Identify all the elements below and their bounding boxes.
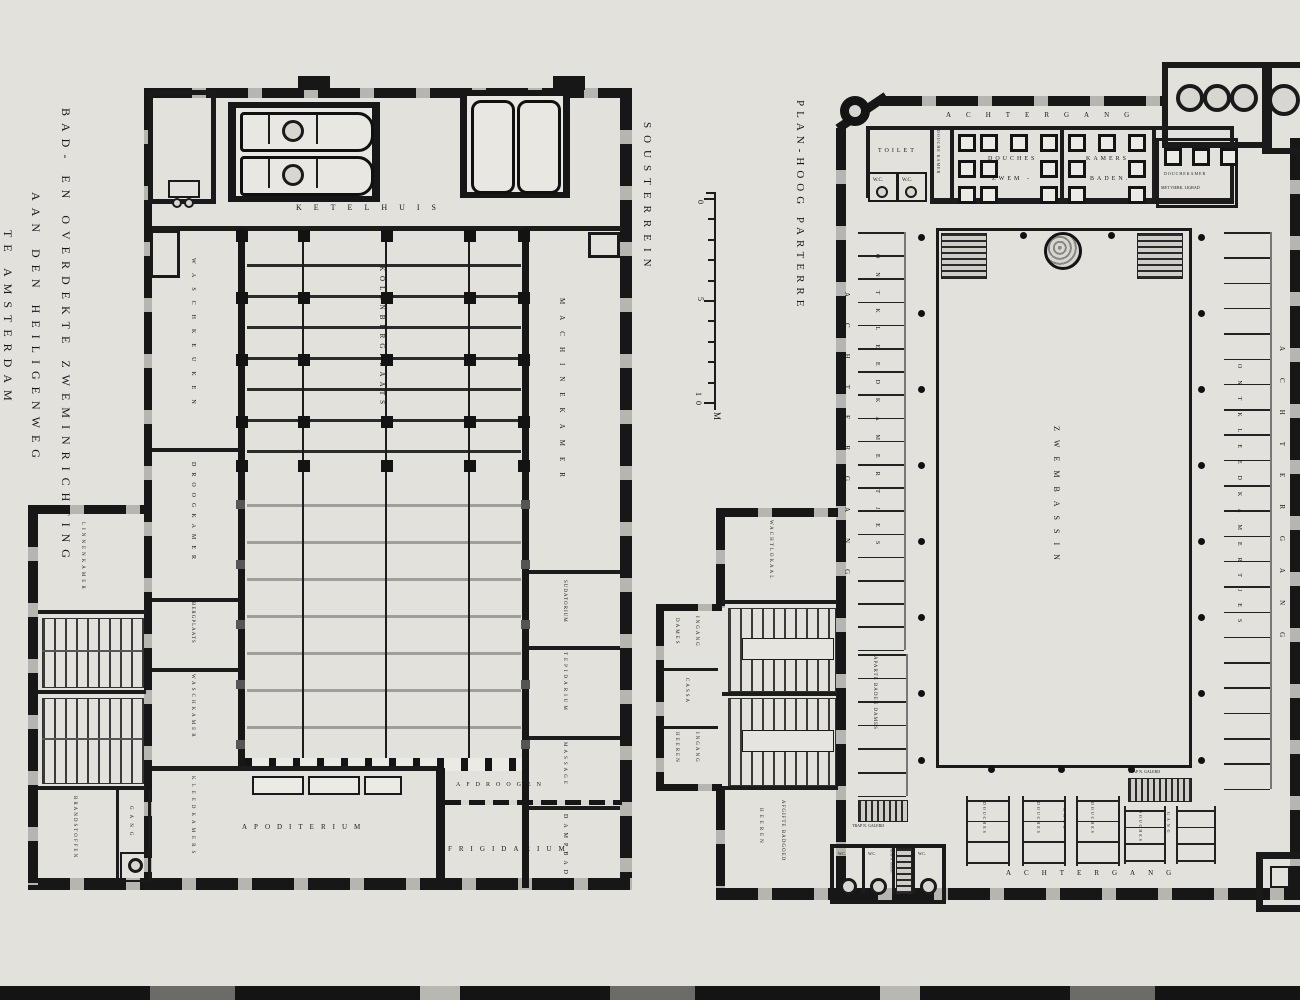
scale-bar-ticks-el: [708, 280, 714, 282]
lp-label-apoditerium: APODITERIUM: [242, 824, 367, 831]
lp-boiler-1-line2: [316, 114, 318, 144]
lp-hall-columns-el: [521, 620, 530, 629]
rp-label-wc-top-2: W.C.: [902, 178, 912, 183]
rp-ent-small-div-2: [662, 726, 718, 729]
lp-hall-columns-el: [298, 460, 310, 472]
rp-douche-groups-el: [966, 862, 1008, 864]
rp-ent-div-y788: [722, 786, 838, 790]
rp-ent-prot-left: [656, 604, 664, 790]
rp-pool-columns-el: [1198, 538, 1205, 545]
rp-shower-squares-el: [1010, 134, 1028, 152]
sheet-title-line1: BAD- EN OVERDEKTE ZWEMINRICHTING: [60, 108, 72, 488]
lp-hall-columns-el: [236, 292, 248, 304]
lp-hall-columns-el: [521, 740, 530, 749]
rp-douche-groups-el: [1022, 841, 1064, 843]
rp-shower-squares-el: [958, 186, 976, 204]
rp-zwem-wall-right: [1060, 126, 1064, 204]
lp-stair-1: [42, 618, 144, 688]
rp-shower-squares-el: [1164, 148, 1182, 166]
rp-stalls-right-el: [1224, 561, 1270, 563]
lp-div-y668: [152, 668, 240, 672]
rp-pool-columns-el: [918, 310, 925, 317]
rp-narrow-wall-2: [950, 126, 954, 204]
lp-hall-columns-el: [236, 500, 245, 509]
rp-stalls-left-el: [858, 654, 906, 656]
lp-stair-2: [42, 698, 144, 784]
rp-label-gang-2: GANG: [1166, 812, 1170, 856]
rp-shower-squares-el: [1040, 186, 1058, 204]
rp-stair-bottom-hatch: [1128, 778, 1192, 802]
rp-label-afgifte: AFGIFTE BADGOED: [780, 800, 785, 886]
rp-pool-steps-tr: [1137, 233, 1183, 279]
rp-shower-squares-el: [958, 134, 976, 152]
lp-hall-columns-el: [236, 680, 245, 689]
lp-label-droogkamer: DROOGKAMER: [190, 462, 196, 594]
rp-stalls-left-el: [858, 772, 906, 774]
rp-shower-squares-el: [1068, 186, 1086, 204]
lp-hall-columns-el: [236, 416, 248, 428]
rp-stalls-left-el: [858, 748, 906, 750]
rp-ent-wall-bottom: [716, 888, 840, 900]
rp-douche-groups-el: [1022, 821, 1064, 823]
lp-label-waschkamer: WASCHKAMER: [190, 674, 195, 764]
rp-stalls-left-el: [858, 418, 904, 420]
rp-ent-stair-2-landing: [742, 730, 834, 752]
lp-hall-beams-lower: [247, 470, 521, 758]
rp-stalls-left-el: [858, 678, 906, 680]
rp-stalls-right-el: [1224, 359, 1270, 361]
lp-label-kleedkamers: KLEEDKAMERS: [190, 776, 195, 876]
rp-stalls-right-el: [1224, 460, 1270, 462]
rp-stalls-right-el: [1224, 637, 1270, 639]
rp-stalls-left-el: [858, 441, 904, 443]
rp-label-douches-4: DOUCHES: [1138, 810, 1142, 864]
rp-stalls-right-el: [1224, 257, 1270, 259]
lp-out-div-y610: [38, 610, 146, 614]
rp-label-heeren-bottom: HEEREN: [758, 808, 763, 868]
rp-pool-columns-el: [1020, 232, 1027, 239]
rp-ent-wall-left-upper: [716, 508, 725, 608]
rp-douche-groups-el: [1076, 821, 1118, 823]
rp-corner-column: [840, 96, 870, 126]
rp-label-achtergang-bottom: ACHTERGANG: [1006, 870, 1184, 877]
lp-hall-columns-el: [464, 416, 476, 428]
lp-reservoir-2: [517, 100, 561, 194]
rp-label-douches-3: DOUCHES: [1090, 802, 1094, 862]
rp-stalls-right-el: [1224, 789, 1270, 791]
rp-stalls-left-el: [858, 557, 904, 559]
rp-stalls-right-el: [1224, 409, 1270, 411]
lp-hall-columns-el: [518, 354, 530, 366]
rp-label-dames: DAMES: [674, 618, 679, 662]
rp-douche-groups-el: [966, 800, 1008, 802]
lp-hall-columns-el: [236, 740, 245, 749]
rp-douche-groups-el: [1176, 806, 1178, 864]
lp-tub-3: [364, 776, 402, 795]
scale-label-unit: M: [712, 412, 721, 426]
rp-wc-div-1: [862, 846, 865, 894]
lp-div-y766: [152, 766, 438, 771]
rp-label-aparte-baden: APARTE BADEN DAMES: [872, 656, 877, 798]
rp-ent-wall-left-lower: [716, 788, 725, 892]
rp-stalls-right-el: [1224, 485, 1270, 487]
rp-douche-groups-el: [1022, 800, 1064, 802]
rp-pool-columns-el: [918, 234, 925, 241]
lp-hall-columns-el: [464, 354, 476, 366]
lp-hall-columns-el: [236, 230, 248, 242]
lp-label-ketelhuis: KETELHUIS: [296, 204, 448, 212]
rp-stalls-right-el: [1224, 434, 1270, 436]
rp-shower-squares-el: [958, 160, 976, 178]
rp-label-achtergang-top: ACHTERGANG: [946, 112, 1144, 119]
lp-hall-columns-el: [518, 230, 530, 242]
rp-stalls-left-el: [858, 701, 906, 703]
rp-label-heeren-ing: HEEREN: [674, 732, 679, 780]
rp-douche-groups-el: [1008, 796, 1010, 866]
rp-label-trap-galerij-bottom: TRAP N. GALERIJ: [1128, 770, 1160, 774]
rp-stalls-left-el: [906, 654, 908, 796]
scale-bar-ticks-el: [708, 218, 714, 220]
rp-label-douches-2: DOUCHES: [1036, 802, 1040, 862]
rp-pool-columns-el: [918, 690, 925, 697]
rp-ent-wall-top: [716, 508, 838, 517]
rp-ent-div-y600: [722, 600, 838, 604]
rp-stalls-left-el: [858, 603, 904, 605]
rp-label-wachtlokaal: WACHTLOKAAL: [768, 520, 773, 598]
lp-out-div-y786: [38, 786, 146, 790]
rp-shower-squares-el: [1098, 134, 1116, 152]
lp-tub-2: [308, 776, 360, 795]
lp-div-right-y570: [529, 570, 620, 574]
lp-out-wall-top: [28, 505, 150, 514]
rp-pool-steps-tl: [941, 233, 987, 279]
rp-narrow-wall-1: [930, 126, 934, 204]
rp-stalls-right-el: [1224, 333, 1270, 335]
lp-hall-columns-el: [521, 680, 530, 689]
rp-label-ontkleed-left: ONTKLEEDKAMERTJES: [874, 254, 880, 626]
lp-boiler-2-line2: [316, 158, 318, 188]
scale-bar-ticks-el: [708, 361, 714, 363]
lp-hall-columns-el: [518, 460, 530, 472]
lp-div-y448: [152, 448, 240, 452]
rp-label-ligbad-1: DOUCHEKAMER: [1164, 172, 1206, 176]
lp-hall-columns-el: [298, 354, 310, 366]
rp-stalls-left-el: [858, 325, 904, 327]
rp-douche-groups-el: [1124, 810, 1164, 812]
lp-stair-2-rail: [42, 738, 142, 740]
left-plan-caption: SOUSTERREIN: [641, 122, 652, 282]
rp-label-toilet: TOILET: [878, 148, 917, 154]
rp-ent-prot-top: [656, 604, 722, 611]
rp-lightwell-4: [1268, 84, 1300, 116]
rp-stalls-right-el: [1224, 713, 1270, 715]
rp-pool-columns-el: [1198, 310, 1205, 317]
rp-wc-fixture-2: [870, 878, 887, 895]
lp-hall-columns-el: [236, 560, 245, 569]
rp-stalls-right-el: [1224, 738, 1270, 740]
rp-pool-columns-el: [918, 538, 925, 545]
lp-wc-cell: [150, 230, 180, 278]
rp-label-kamers-2: BADEN.: [1090, 176, 1130, 182]
scale-bar-ticks-el: [708, 320, 714, 322]
rp-shower-squares-el: [1220, 148, 1238, 166]
lp-small-cell-fixture: [128, 858, 143, 873]
rp-wc-fixture-1: [840, 878, 857, 895]
lp-hall-columns-el: [236, 354, 248, 366]
rp-label-cassa: CASSA: [684, 678, 689, 720]
rp-label-wc-top-1: W.C.: [873, 178, 883, 183]
lp-wall-x436: [436, 768, 445, 880]
lp-reservoir-1: [471, 100, 515, 194]
rp-ent-small-div-1: [662, 668, 718, 671]
rp-label-gang-1: GANG: [1062, 808, 1066, 854]
rp-pool-columns-el: [918, 757, 925, 764]
rp-stalls-left-el: [858, 278, 904, 280]
rp-wc-fixture-3: [920, 878, 937, 895]
lp-boiler-2: [240, 156, 374, 196]
scan-edge-strip: [0, 986, 1300, 1000]
lp-out-div-y690: [38, 690, 146, 694]
rp-label-trap-soust: TRAP N. SOUST.: [889, 848, 893, 892]
lp-hall-columns-el: [298, 292, 310, 304]
lp-label-frigidarium: FRIGIDARIUM: [448, 846, 572, 853]
lp-hall-columns-el: [236, 460, 248, 472]
lp-hall-columns-el: [464, 460, 476, 472]
rp-stair-soust-hatch: [896, 848, 912, 894]
rp-douche-groups-el: [1124, 806, 1126, 864]
rp-stair-left-hatch: [858, 800, 908, 822]
rp-stalls-left-el: [858, 394, 904, 396]
lp-label-bergplaats: BERGPLAATS: [190, 602, 195, 666]
rp-douche-groups-el: [966, 821, 1008, 823]
rp-label-wc-3: W.C.: [918, 852, 926, 856]
rp-stalls-left-el: [858, 580, 904, 582]
rp-pool-columns-el: [1198, 757, 1205, 764]
rp-stalls-right-el: [1224, 687, 1270, 689]
scale-bar-ticks-el: [708, 239, 714, 241]
lp-gang-wall-1: [116, 790, 119, 880]
lp-wall-left-main: [144, 88, 152, 888]
sheet-title-line3: TE AMSTERDAM: [2, 230, 14, 390]
rp-stalls-left-el: [858, 464, 904, 466]
sheet-title-line2: AAN DEN HEILIGENWEG: [30, 192, 42, 422]
lp-boiler-1: [240, 112, 374, 152]
lp-chimney-stub-2: [553, 76, 585, 90]
lp-hall-columns-el: [521, 500, 530, 509]
rp-stalls-left-el: [858, 626, 904, 628]
rp-lightwell-1: [1176, 84, 1204, 112]
rp-pool-columns-el: [1108, 232, 1115, 239]
rp-stalls-right-el: [1224, 612, 1270, 614]
rp-stalls-right-el: [1224, 232, 1270, 234]
rp-douche-groups-el: [1022, 796, 1024, 866]
rp-douche-groups-el: [1076, 862, 1118, 864]
rp-pool-columns-el: [918, 386, 925, 393]
lp-label-linnenkamer: LINNENKAMER: [80, 522, 85, 608]
rp-label-ontkleed-right: ONTKLEEDKAMERTJES: [1236, 364, 1242, 694]
rp-wall-right: [1290, 138, 1300, 898]
rp-pool-columns-el: [1198, 614, 1205, 621]
lp-chimney-stub-1: [298, 76, 330, 90]
rp-label-achtergang-left: ACHTERGANG: [843, 292, 850, 642]
rp-pool-columns-el: [918, 462, 925, 469]
rp-stalls-right-el: [1224, 308, 1270, 310]
lp-hall-post-line-3: [468, 232, 470, 760]
rp-shower-squares-el: [1040, 134, 1058, 152]
rp-shower-squares-el: [1040, 160, 1058, 178]
lp-boiler-2-line: [268, 158, 270, 188]
lp-boiler-2-manhole: [282, 164, 304, 186]
rp-pool-columns-el: [1058, 766, 1065, 773]
lp-hall-columns-el: [236, 620, 245, 629]
lp-annex-fixture: [168, 180, 200, 198]
lp-hall-columns-el: [298, 230, 310, 242]
lp-div-right-y736: [529, 736, 620, 740]
rp-shower-squares-el: [980, 186, 998, 204]
rp-shower-squares-el: [1068, 134, 1086, 152]
lp-label-machinekamer: MACHINEKAMER: [558, 298, 565, 526]
scale-bar-ticks-el: [708, 259, 714, 261]
rp-stalls-left-el: [858, 796, 906, 798]
rp-label-achtergang-right: ACHTERGANG: [1278, 346, 1285, 702]
rp-douche-groups-el: [1124, 827, 1164, 829]
scale-bar-ticks-el: [708, 341, 714, 343]
rp-shower-squares-el: [1192, 148, 1210, 166]
rp-douche-groups-el: [1022, 862, 1064, 864]
lp-out-wall-left: [28, 505, 38, 885]
scale-label-0: 0: [696, 200, 704, 214]
rp-douche-groups-el: [1124, 843, 1164, 845]
rp-label-ingang-dames: INGANG: [694, 616, 699, 664]
lp-label-kolenbergplaats: KOLENBERGPLAATS: [378, 266, 385, 438]
rp-pool-columns-el: [1198, 386, 1205, 393]
rp-wc-block: [830, 844, 946, 904]
rp-stalls-right-el: [1270, 232, 1272, 789]
rp-pool-columns-el: [1198, 234, 1205, 241]
lp-boiler-1-manhole: [282, 120, 304, 142]
rp-stalls-right-el: [1224, 536, 1270, 538]
scale-bar-bracket: [706, 192, 716, 194]
rp-lightwell-2: [1203, 84, 1231, 112]
lp-annex-fixture-dot-1: [172, 198, 182, 208]
rp-stalls-left-el: [858, 302, 904, 304]
rp-shower-squares-el: [1068, 160, 1086, 178]
rp-douche-groups-el: [1176, 860, 1214, 862]
lp-div-right-y806: [529, 806, 620, 810]
rp-label-ligbad-2: MET VIERK. LIGBAD: [1161, 186, 1200, 190]
rp-shower-squares-el: [1128, 160, 1146, 178]
scale-bar-ticks-el: [708, 382, 714, 384]
right-plan-caption: PLAN-HOOG PARTERRE: [794, 100, 805, 310]
lp-wall-right: [620, 88, 632, 890]
lp-tub-1: [252, 776, 304, 795]
rp-label-wc-1: W.C.: [838, 852, 846, 856]
rp-shower-squares-el: [1128, 134, 1146, 152]
rp-label-douchekamer-narrow: DOUCHE KAMER: [936, 130, 940, 200]
rp-label-trap-galerij-left: TRAP N. GALERIJ: [852, 824, 884, 828]
rp-lightwell-3: [1230, 84, 1258, 112]
lp-hall-columns-el: [521, 560, 530, 569]
lp-hall-columns-el: [381, 230, 393, 242]
rp-douche-groups-el: [1176, 827, 1214, 829]
rp-ent-prot-bottom: [656, 784, 722, 791]
scale-bar-line: [714, 192, 716, 410]
rp-stalls-right-el: [1224, 763, 1270, 765]
lp-div-y598: [152, 598, 240, 602]
rp-stalls-right-el: [1224, 662, 1270, 664]
rp-label-kamers-1: KAMERS: [1086, 156, 1129, 162]
rp-stalls-left-el: [858, 348, 904, 350]
rp-pool-columns-el: [1198, 690, 1205, 697]
rp-stalls-left-el: [858, 232, 904, 234]
rp-shower-squares-el: [1128, 186, 1146, 204]
rp-stalls-left-el: [858, 487, 904, 489]
rp-douche-groups-el: [966, 841, 1008, 843]
rp-douche-groups-el: [1076, 796, 1078, 866]
rp-stalls-right-el: [1224, 283, 1270, 285]
rp-douche-groups-el: [1124, 860, 1164, 862]
rp-stalls-left-el: [858, 725, 906, 727]
rp-stalls-left-el: [904, 232, 906, 650]
lp-stair-1-rail: [42, 650, 142, 652]
lp-hall-post-line-1: [302, 232, 304, 760]
lp-boiler-1-line: [268, 114, 270, 144]
rp-wc-div-3: [912, 846, 915, 894]
rp-label-zwembassin: ZWEMBASSIN: [1052, 426, 1060, 576]
rp-stalls-right-el: [1224, 510, 1270, 512]
rp-pool-columns-el: [988, 766, 995, 773]
lp-label-brandstoffen: BRANDSTOFFEN: [72, 796, 77, 882]
rp-douche-groups-el: [1214, 806, 1216, 864]
lp-div-right-y646: [529, 646, 620, 650]
drawing-sheet: BAD- EN OVERDEKTE ZWEMINRICHTING AAN DEN…: [0, 0, 1300, 1000]
rp-douche-groups-el: [1076, 841, 1118, 843]
lp-label-massage: MASSAGE: [562, 742, 567, 802]
rp-fountain: [1044, 232, 1082, 270]
rp-label-wc-2: W.C.: [868, 852, 876, 856]
rp-wc-top-fixture-2: [905, 186, 917, 198]
rp-stalls-left-el: [858, 371, 904, 373]
rp-ent-div-y692: [722, 692, 838, 696]
lp-hall-columns-el: [518, 292, 530, 304]
rp-stalls-right-el: [1224, 586, 1270, 588]
scale-label-5: 5: [696, 297, 704, 311]
lp-hall-columns-el: [518, 416, 530, 428]
rp-stalls-right-el: [1224, 384, 1270, 386]
scale-label-10: 10: [694, 392, 702, 410]
lp-hall-columns-el: [464, 230, 476, 242]
rp-douche-groups-el: [1118, 796, 1120, 866]
lp-label-afdroogen: AFDROOGEN: [456, 782, 547, 788]
scale-bar-ticks-el: [704, 300, 714, 302]
rp-wall-top: [880, 96, 1166, 106]
lp-hall-columns-el: [464, 292, 476, 304]
rp-pool-columns-el: [918, 614, 925, 621]
rp-corner-block-inner: [1270, 866, 1290, 888]
lp-div-frigid: [445, 800, 622, 805]
lp-hall-columns-el: [298, 416, 310, 428]
rp-stalls-left-el: [858, 534, 904, 536]
rp-douche-groups-el: [1176, 810, 1214, 812]
rp-label-ingang-heeren: INGANG: [694, 732, 699, 780]
lp-label-gang: GANG: [128, 806, 133, 858]
lp-hall-columns-el: [381, 460, 393, 472]
scale-bar-ticks-el: [704, 198, 714, 200]
lp-hall-wall-right: [522, 228, 529, 888]
lp-machine-fixture: [588, 232, 620, 258]
lp-label-tepidarium: TEPIDARIUM: [562, 652, 567, 732]
rp-wc-top-fixture-1: [876, 186, 888, 198]
